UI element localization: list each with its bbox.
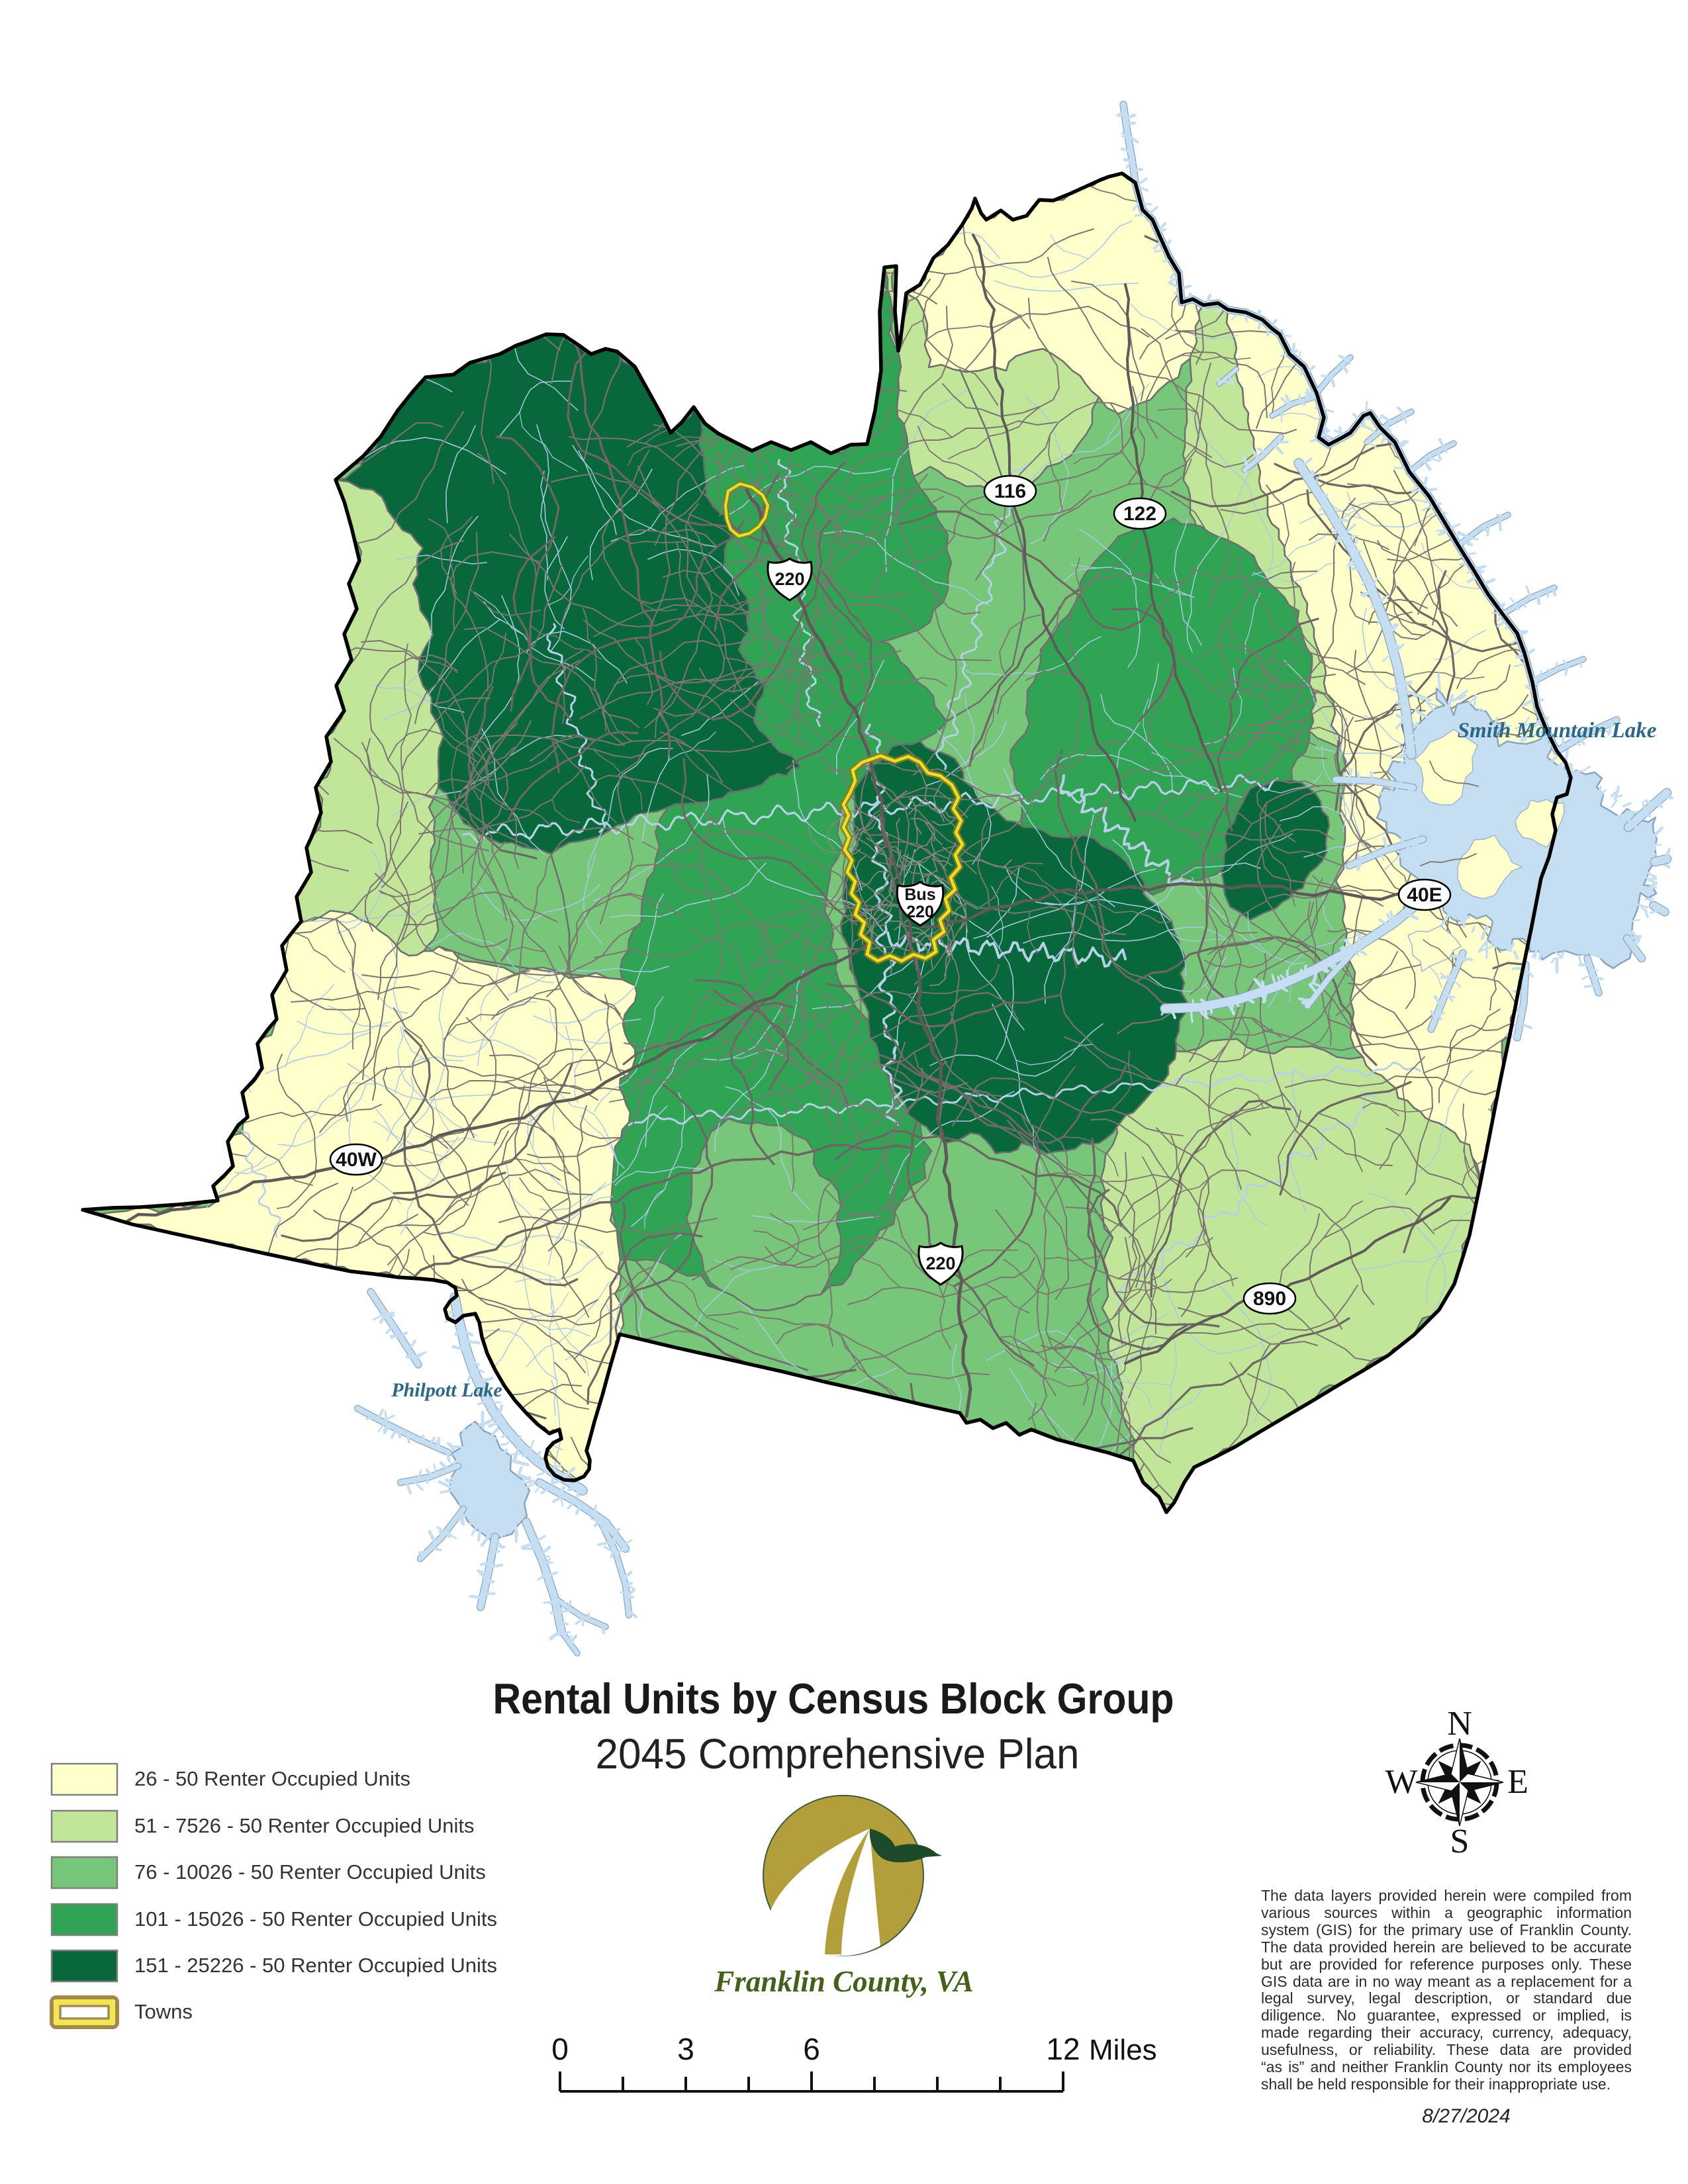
svg-text:Franklin County, VA: Franklin County, VA (714, 1965, 973, 1998)
svg-text:122: 122 (1123, 503, 1156, 525)
svg-text:220: 220 (925, 1253, 955, 1273)
svg-text:E: E (1507, 1763, 1528, 1801)
svg-text:Rental Units by Census Block G: Rental Units by Census Block Group (493, 1674, 1174, 1723)
svg-text:Smith Mountain Lake: Smith Mountain Lake (1458, 719, 1657, 743)
svg-text:220: 220 (906, 903, 934, 921)
svg-text:101 - 15026 - 50 Renter Occupi: 101 - 15026 - 50 Renter Occupied Units (134, 1907, 497, 1931)
svg-text:76 - 10026 - 50 Renter Occupie: 76 - 10026 - 50 Renter Occupied Units (134, 1860, 486, 1884)
svg-text:Bus: Bus (904, 886, 935, 904)
svg-text:Towns: Towns (134, 2000, 193, 2023)
svg-text:12: 12 (1046, 2032, 1080, 2066)
svg-text:151 - 25226 - 50 Renter Occupi: 151 - 25226 - 50 Renter Occupied Units (134, 1954, 497, 1977)
svg-text:S: S (1450, 1823, 1470, 1860)
svg-text:51 - 7526 - 50 Renter Occupied: 51 - 7526 - 50 Renter Occupied Units (134, 1814, 475, 1837)
svg-text:3: 3 (677, 2032, 694, 2066)
svg-text:W: W (1385, 1763, 1417, 1801)
svg-text:220: 220 (774, 569, 804, 589)
svg-text:2045 Comprehensive Plan: 2045 Comprehensive Plan (596, 1730, 1080, 1778)
svg-text:6: 6 (803, 2032, 820, 2066)
svg-text:Philpott Lake: Philpott Lake (391, 1379, 502, 1401)
svg-text:Miles: Miles (1089, 2034, 1157, 2066)
svg-text:890: 890 (1253, 1288, 1286, 1310)
svg-text:0: 0 (551, 2032, 569, 2066)
svg-text:26 - 50 Renter Occupied Units: 26 - 50 Renter Occupied Units (134, 1767, 410, 1790)
svg-text:40E: 40E (1407, 884, 1442, 906)
svg-text:8/27/2024: 8/27/2024 (1422, 2105, 1510, 2127)
svg-text:116: 116 (994, 480, 1026, 502)
svg-text:N: N (1447, 1705, 1472, 1743)
svg-text:40W: 40W (336, 1149, 377, 1171)
